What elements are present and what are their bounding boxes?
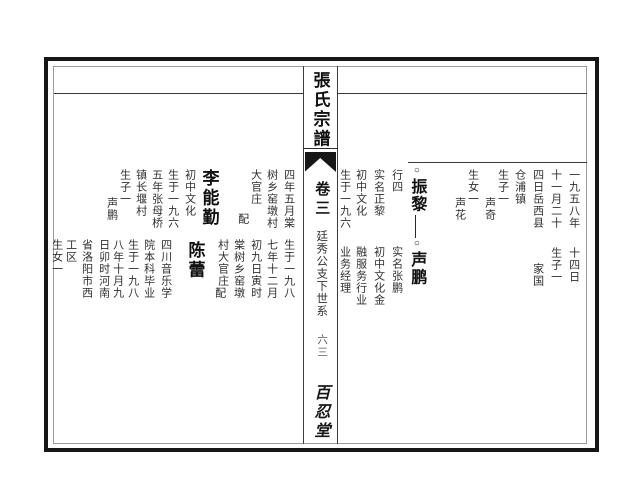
child-label: 生子一 (496, 169, 509, 205)
person-note: 生子一 (118, 169, 131, 205)
person-note: 初中文化金 (372, 246, 385, 306)
person-note: 五年张母桥 (150, 169, 163, 229)
child-label: 生女一 (466, 169, 479, 205)
spouse-name: 李能勤 (199, 169, 219, 228)
section-label: 廷秀公支下世系 (314, 230, 327, 318)
person-name-text: 振黎 (408, 178, 425, 213)
annotation-column: 四日岳西县 (531, 169, 544, 229)
spouse-name: 陈蕾 (185, 241, 205, 280)
page-number: 六三 (315, 334, 327, 359)
person-note: 工区 (64, 239, 77, 263)
header-rule-left (54, 93, 303, 94)
person-note: 业务经理 (338, 246, 351, 294)
person-name-text: 声鹏 (408, 251, 425, 286)
person-note: 八年十月九 (111, 239, 124, 299)
spouse-marker: 配 (213, 287, 226, 298)
person-note: 生于一九六 (338, 169, 351, 229)
hall-name: 百忍堂 (310, 384, 328, 441)
person-note: 生于一九六 (166, 169, 179, 229)
person-note: 省洛阳市西 (80, 239, 93, 299)
person-note: 初中文化 (183, 169, 196, 217)
person-name-son: ○声鹏 (407, 238, 425, 286)
genealogy-book-page: 張氏宗譜 卷三 廷秀公支下世系 六三 百忍堂 一九五八年 十一月二十 四日岳西县… (0, 0, 640, 480)
child-name: 家国 (531, 263, 544, 287)
person-note: 生女一 (50, 239, 63, 275)
child-name: 声鹏 (105, 197, 118, 221)
person-note: 日卯时河南 (97, 239, 110, 299)
person-note: 初中文化 (354, 169, 367, 217)
annotation-column: 棠树乡窑墩 (232, 239, 245, 299)
person-note: 融服务行业 (354, 246, 367, 306)
lineage-circle-icon: ○ (411, 165, 422, 178)
person-note: 院本科毕业 (142, 239, 155, 299)
child-name: 声花 (453, 197, 466, 221)
volume-label: 卷三 (312, 181, 329, 219)
person-note: 生于一九八 (126, 239, 139, 299)
book-title: 張氏宗譜 (310, 71, 330, 149)
person-note: 四川音乐学 (159, 239, 172, 299)
person-name-father: ○振黎 (407, 165, 425, 213)
annotation-column: 一九五八年 (567, 169, 580, 229)
annotation-column: 生于一九八 (282, 239, 295, 299)
annotation-column: 七年十二月 (265, 239, 278, 299)
annotation-column: 十一月二十 (549, 169, 562, 229)
child-name: 声奇 (483, 197, 496, 221)
person-note: 实名张鹏 (390, 246, 403, 294)
spouse-marker: 配 (236, 213, 249, 224)
person-note: 镇长堰村 (134, 169, 147, 217)
header-rule-right (337, 93, 587, 94)
person-note: 行四 (390, 169, 403, 193)
annotation-column: 仓浦镇 (513, 169, 526, 205)
annotation-column: 十四日 (567, 247, 580, 283)
annotation-column: 村大官庄 (216, 239, 229, 287)
descent-connector-line (415, 215, 416, 238)
person-note: 实名正黎 (372, 169, 385, 217)
annotation-column: 树乡窑墩村 (265, 169, 278, 229)
annotation-column: 四年五月棠 (282, 169, 295, 229)
annotation-column: 大官庄 (249, 169, 262, 205)
lineage-circle-icon: ○ (411, 238, 422, 251)
child-label: 生子一 (549, 247, 562, 283)
lineage-row-rule (408, 162, 587, 163)
annotation-column: 初九日寅时 (249, 239, 262, 299)
